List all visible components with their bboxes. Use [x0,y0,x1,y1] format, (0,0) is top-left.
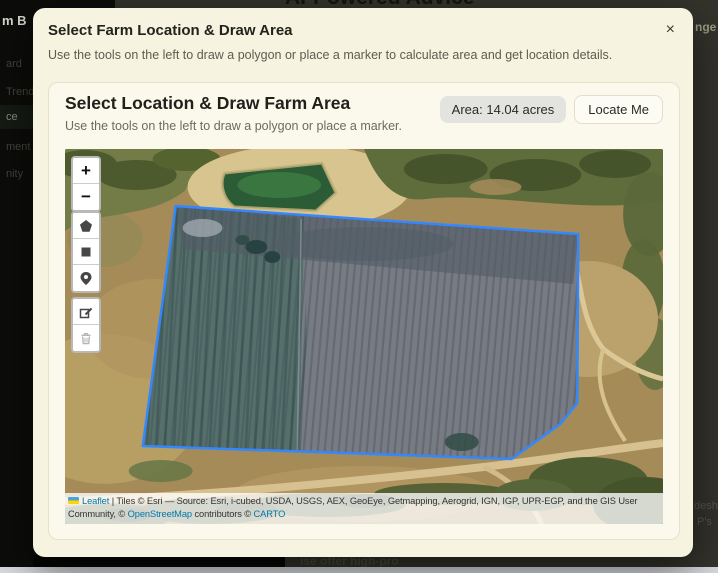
background-bottom-bar [0,567,718,573]
sidebar-item-partial: Trend [6,86,34,98]
sidebar-item-partial: ard [6,58,22,70]
rectangle-icon [79,245,93,259]
farm-area-polygon[interactable] [143,206,579,459]
map-attribution: Leaflet | Tiles © Esri — Source: Esri, i… [65,493,663,524]
attribution-separator: | [112,496,114,506]
area-badge: Area: 14.04 acres [440,96,567,123]
zoom-control: + − [71,156,101,212]
zoom-in-button[interactable]: + [73,158,99,184]
draw-rectangle-button[interactable] [73,239,99,265]
zoom-out-button[interactable]: − [73,184,99,210]
marker-icon [79,271,93,285]
openstreetmap-link[interactable]: OpenStreetMap [128,509,192,519]
edit-icon [79,305,93,319]
farm-location-modal: Select Farm Location & Draw Area Use the… [33,8,693,557]
draw-polygon-button[interactable] [73,213,99,239]
panel-subtitle: Use the tools on the left to draw a poly… [65,119,402,133]
modal-title: Select Farm Location & Draw Area [48,22,293,39]
sidebar-item-partial: ment [6,141,30,153]
leaflet-map[interactable]: + − [65,149,663,524]
close-icon[interactable]: × [662,18,679,42]
modal-subtitle: Use the tools on the left to draw a poly… [48,48,612,62]
background-bottomright-partial: desh [694,500,718,512]
map-panel: Select Location & Draw Farm Area Use the… [48,82,680,540]
carto-link[interactable]: CARTO [254,509,286,519]
contributors-text: contributors © [194,509,251,519]
edit-layers-button[interactable] [73,299,99,325]
satellite-imagery [65,149,663,524]
background-bottomright-partial: P's [697,516,712,528]
edit-toolbar [71,297,101,353]
panel-actions: Area: 14.04 acres Locate Me [440,95,663,124]
leaflet-link[interactable]: Leaflet [82,496,109,506]
trash-icon [79,331,93,345]
draw-toolbar [71,211,101,293]
ukraine-flag-icon [68,497,79,504]
sidebar-item-partial: nity [6,168,23,180]
sidebar-logo-partial: m B [2,13,27,28]
screen: m B ard Trend ce ment nity AI-Powered Ad… [0,0,718,573]
delete-layers-button[interactable] [73,325,99,351]
place-marker-button[interactable] [73,265,99,291]
polygon-icon [79,219,93,233]
background-topright-partial: nge [695,20,716,34]
locate-me-button[interactable]: Locate Me [574,95,663,124]
panel-title: Select Location & Draw Farm Area [65,93,350,114]
